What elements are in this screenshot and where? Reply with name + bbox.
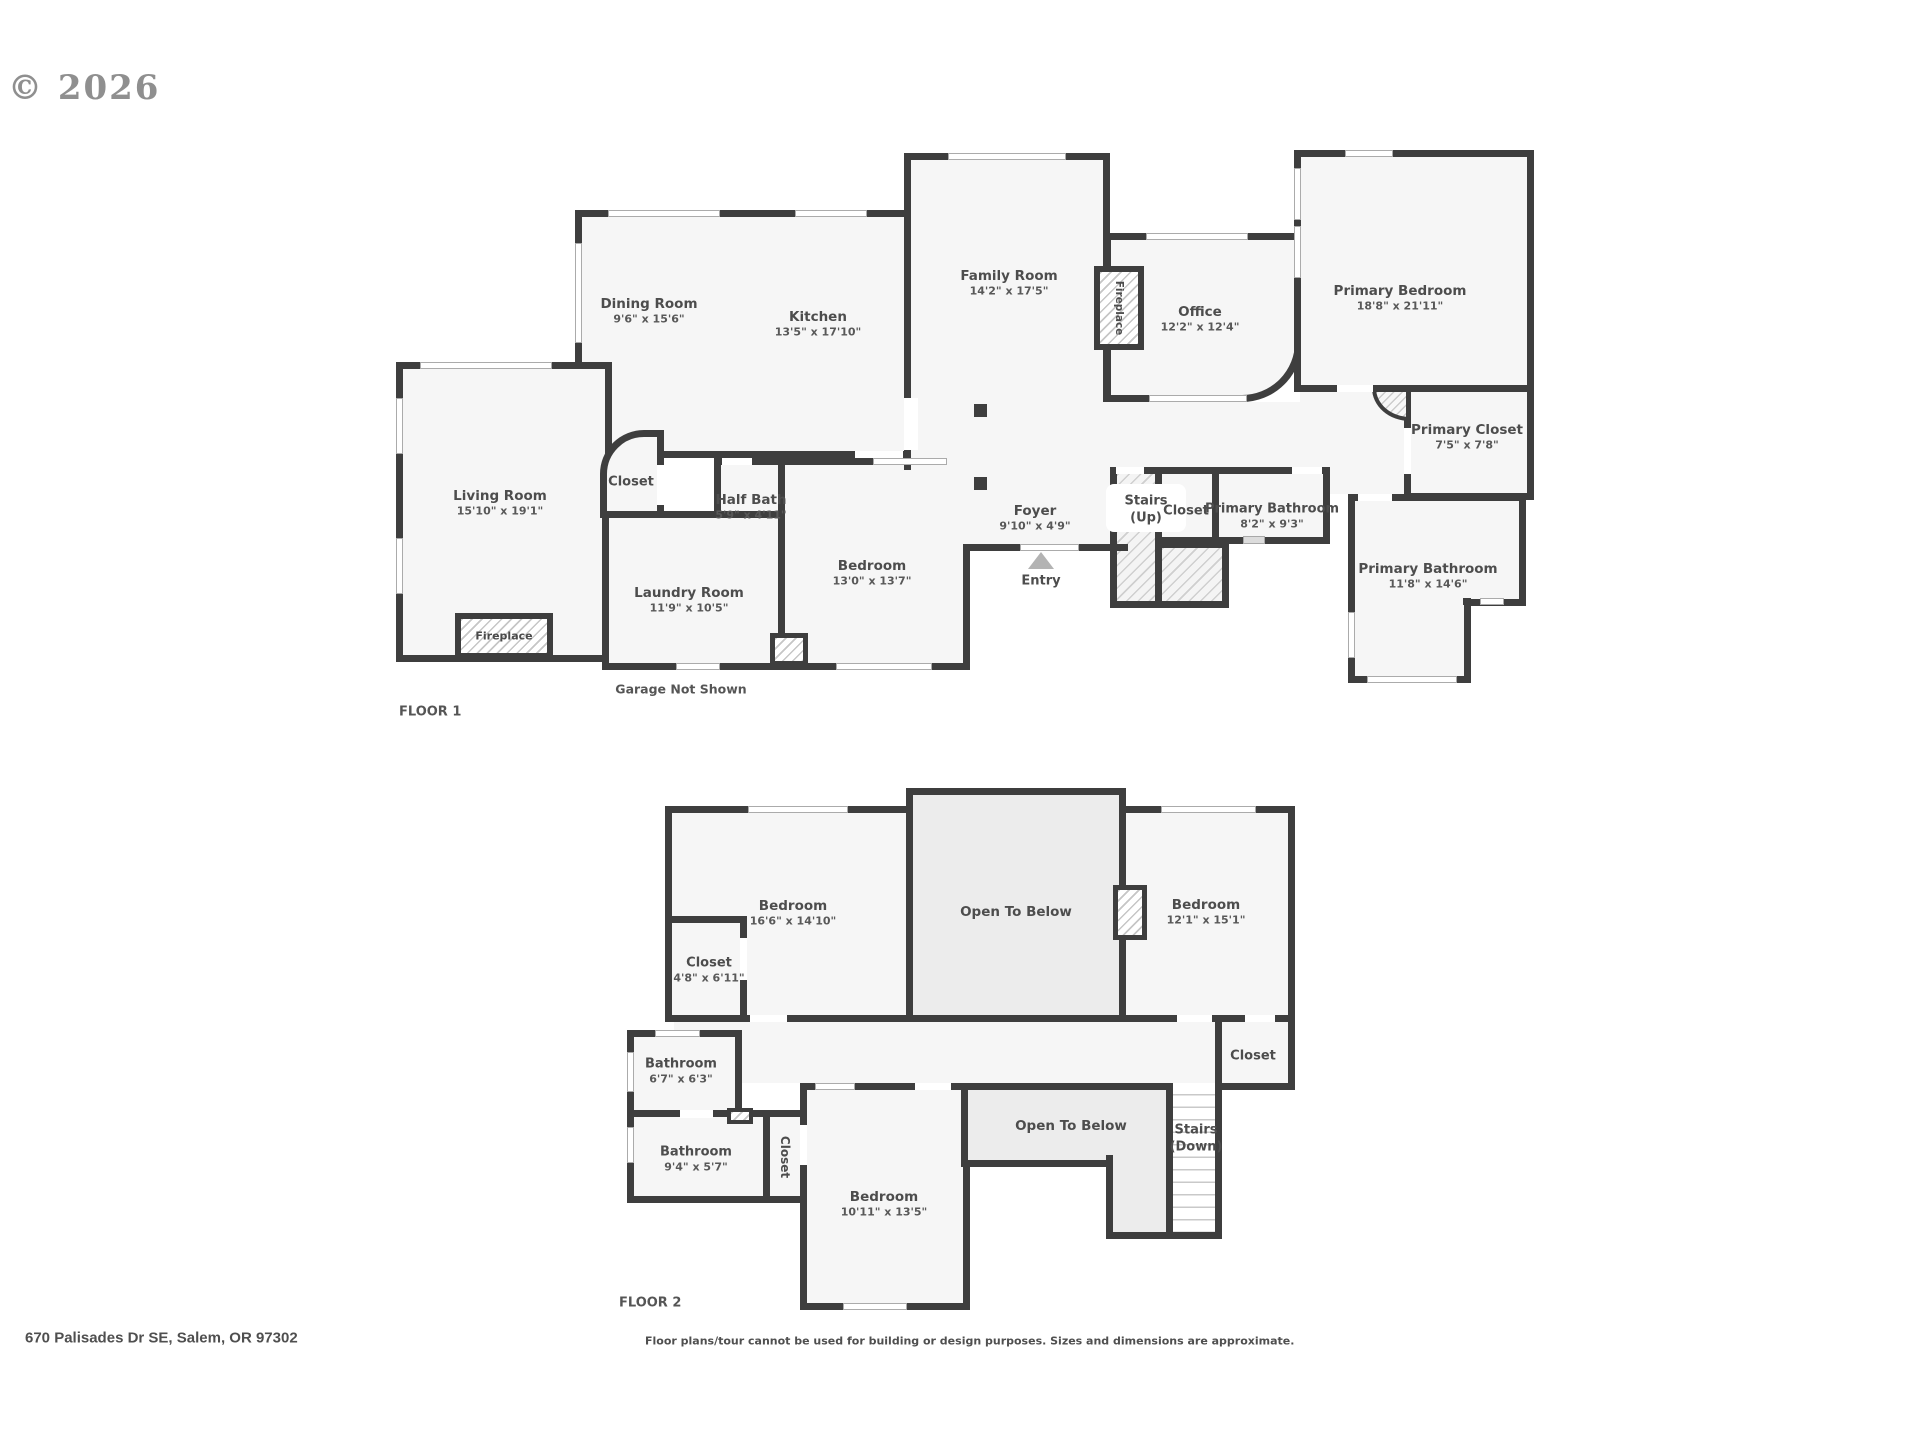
room-dims: 15'10" x 19'1" (457, 505, 544, 518)
window (655, 1030, 700, 1037)
room-dims: 12'2" x 12'4" (1161, 321, 1240, 334)
floor1-title: FLOOR 1 (399, 705, 461, 720)
room-label: (Up) (1130, 511, 1162, 526)
window (1367, 676, 1457, 683)
window (873, 458, 947, 465)
disclaimer-text: Floor plans/tour cannot be used for buil… (645, 1335, 1294, 1348)
entry-label: Entry (1021, 574, 1060, 589)
room-dims: 9'6" x 15'6" (613, 313, 684, 326)
garage-note: Garage Not Shown (615, 682, 746, 697)
room-label: Primary Bathroom (1358, 561, 1497, 577)
room-dims: 11'9" x 10'5" (650, 602, 729, 615)
stairs-down (1166, 1083, 1222, 1239)
room-label: Closet (1163, 504, 1209, 519)
room-dims: 10'11" x 13'5" (841, 1206, 928, 1219)
hall-closet-door (657, 465, 664, 505)
window (396, 538, 403, 594)
window (575, 243, 582, 343)
room-dims: 9'4" x 5'7" (664, 1161, 728, 1174)
window (843, 1303, 907, 1310)
kitchen-hall-opening (855, 451, 903, 458)
window (608, 210, 720, 217)
half-bath-door (722, 458, 752, 465)
room-label: Dining Room (600, 296, 697, 312)
primary-bath-small-bottom-door (1243, 536, 1265, 544)
window (1345, 150, 1393, 157)
window (1294, 168, 1301, 220)
stairs-opening (1116, 467, 1144, 474)
window (396, 398, 403, 454)
window (627, 1052, 634, 1092)
room-label: Primary Bedroom (1334, 283, 1467, 299)
room-label: Bathroom (660, 1145, 732, 1160)
window (836, 663, 932, 670)
foyer-bottom-wall-right (1079, 544, 1128, 551)
bedroom2-2-chase-hatch (1113, 885, 1147, 940)
entry-arrow-icon (1028, 552, 1054, 569)
room-dims: 7'5" x 7'8" (1435, 439, 1499, 452)
window (1294, 226, 1301, 278)
room-label: Half Bath (715, 492, 786, 508)
room-dims: 5'9" x 4'11" (715, 509, 786, 522)
open-to-below-merge-fill (1113, 1153, 1166, 1171)
room-label: Family Room (960, 268, 1057, 284)
room-dims: 8'2" x 9'3" (1240, 518, 1304, 531)
window (1480, 598, 1504, 605)
fireplace-label: Fireplace (475, 630, 532, 643)
window (948, 153, 1066, 160)
room-label: Closet (778, 1136, 792, 1178)
room-label: Laundry Room (634, 585, 744, 601)
closet-strip-door (800, 1125, 807, 1165)
room-label: Bedroom (850, 1189, 918, 1205)
laundry-chase-hatch (770, 633, 808, 666)
room-dims: 18'8" x 21'11" (1357, 300, 1444, 313)
room-label: Closet (1230, 1049, 1276, 1064)
room-primary-bedroom (1294, 150, 1534, 392)
room-label: Primary Bathroom (1205, 502, 1339, 517)
bedroom2-3-door (915, 1083, 951, 1090)
room-label: Open To Below (1015, 1118, 1127, 1134)
window (815, 1083, 855, 1090)
bedroom2-1-door (750, 1015, 787, 1022)
window (1161, 806, 1256, 813)
room-label: Kitchen (789, 309, 847, 325)
wall-stub-top (974, 404, 987, 417)
room-label: Bathroom (645, 1057, 717, 1072)
bathroom-chase-hatch (727, 1108, 753, 1124)
room-dims: 4'8" x 6'11" (673, 972, 744, 985)
room-label: (Down) (1170, 1140, 1223, 1155)
window (1146, 233, 1248, 240)
room-label: Primary Closet (1411, 422, 1523, 438)
window (676, 663, 720, 670)
hall2-fill (674, 1022, 1220, 1083)
window (420, 362, 552, 369)
room-dims: 6'7" x 6'3" (649, 1073, 713, 1086)
room-label: Closet (608, 475, 654, 490)
room-label: Office (1178, 304, 1222, 320)
room-dims: 9'10" x 4'9" (999, 520, 1070, 533)
room-label: Stairs (1175, 1123, 1218, 1138)
room-label: Bedroom (1172, 897, 1240, 913)
kitchen-family-opening (904, 398, 918, 450)
room-label: Stairs (1125, 494, 1168, 509)
room-dims: 13'0" x 13'7" (833, 575, 912, 588)
entry-door (1020, 544, 1079, 551)
floor-plan-page: © 2026 (0, 0, 1920, 1440)
property-address: 670 Palisades Dr SE, Salem, OR 97302 (25, 1330, 298, 1347)
window (748, 806, 848, 813)
room-label: Bedroom (838, 558, 906, 574)
room-label: Foyer (1014, 503, 1057, 519)
room-label: Bedroom (759, 898, 827, 914)
room-dims: 16'6" x 14'10" (750, 915, 837, 928)
window (627, 1127, 634, 1163)
room-label: Living Room (453, 488, 547, 504)
fireplace-label: Fireplace (1113, 281, 1125, 336)
room-dims: 14'2" x 17'5" (970, 285, 1049, 298)
room-label: Open To Below (960, 904, 1072, 920)
window (1149, 395, 1247, 402)
room-dims: 12'1" x 15'1" (1167, 914, 1246, 927)
window (795, 210, 867, 217)
primary-bath-small-door (1292, 467, 1322, 474)
foyer-bottom-wall-left (963, 544, 1020, 551)
stairs-up-hatch-lower (1155, 541, 1229, 608)
bathroom-shared-door (680, 1110, 713, 1118)
primary-bedroom-door (1337, 385, 1373, 392)
closet2-right-door (1245, 1015, 1275, 1022)
room-label: Closet (686, 956, 732, 971)
wall-stub-bottom (974, 477, 987, 490)
primary-closet-door (1404, 428, 1411, 474)
primary-bath-merge-fill (1355, 592, 1463, 612)
bedroom2-2-door (1177, 1015, 1212, 1022)
room-dims: 13'5" x 17'10" (775, 326, 862, 339)
window (1348, 612, 1355, 658)
copyright-watermark: © 2026 (8, 68, 160, 108)
room-dims: 11'8" x 14'6" (1389, 578, 1468, 591)
floor2-title: FLOOR 2 (619, 1296, 681, 1311)
primary-bath-big-door (1358, 494, 1392, 501)
